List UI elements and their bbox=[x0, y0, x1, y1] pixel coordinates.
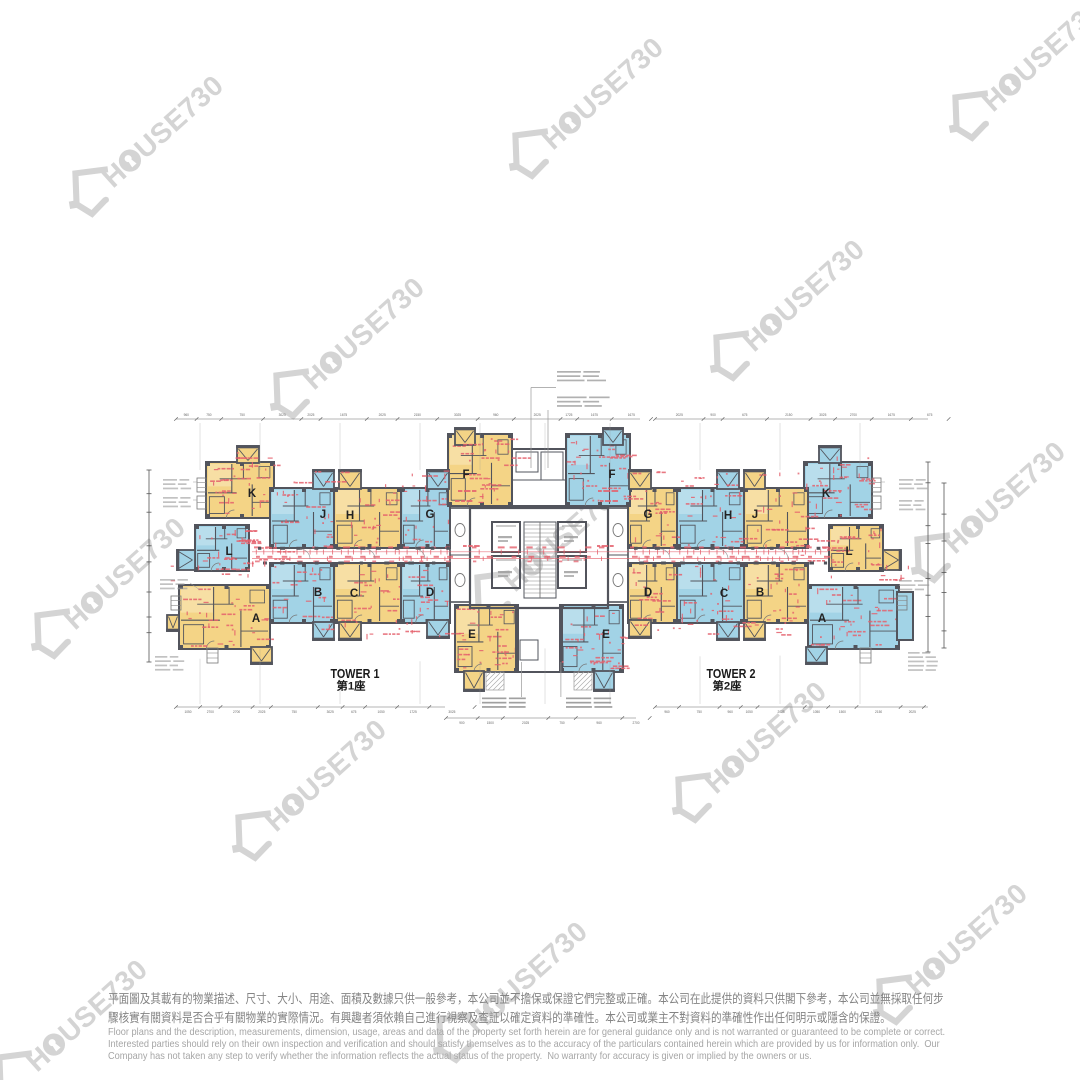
svg-text:L: L bbox=[845, 546, 852, 558]
svg-text:2700: 2700 bbox=[233, 710, 240, 714]
svg-text:750: 750 bbox=[559, 721, 565, 725]
svg-text:2025: 2025 bbox=[379, 413, 386, 417]
svg-text:960: 960 bbox=[596, 721, 602, 725]
svg-text:750: 750 bbox=[697, 710, 703, 714]
svg-text:675: 675 bbox=[351, 710, 357, 714]
svg-text:B: B bbox=[314, 587, 322, 599]
svg-text:J: J bbox=[320, 509, 326, 521]
svg-text:D: D bbox=[644, 587, 652, 599]
svg-text:1050: 1050 bbox=[184, 710, 191, 714]
svg-text:K: K bbox=[248, 488, 257, 500]
svg-text:1675: 1675 bbox=[628, 413, 635, 417]
svg-text:960: 960 bbox=[493, 413, 499, 417]
svg-text:HOUSE730: HOUSE730 bbox=[900, 876, 1034, 1001]
svg-text:HOUSE730: HOUSE730 bbox=[297, 270, 431, 395]
svg-text:3025: 3025 bbox=[454, 413, 461, 417]
svg-text:2025: 2025 bbox=[258, 710, 265, 714]
svg-text:3025: 3025 bbox=[327, 710, 334, 714]
svg-text:TOWER 1: TOWER 1 bbox=[331, 667, 380, 681]
svg-text:H: H bbox=[724, 510, 732, 522]
svg-text:1675: 1675 bbox=[340, 413, 347, 417]
svg-text:900: 900 bbox=[459, 721, 465, 725]
svg-text:第2座: 第2座 bbox=[713, 679, 742, 693]
svg-text:F: F bbox=[462, 469, 469, 481]
svg-text:B: B bbox=[756, 587, 764, 599]
svg-text:J: J bbox=[752, 509, 758, 521]
svg-text:HOUSE730: HOUSE730 bbox=[96, 68, 230, 193]
svg-text:K: K bbox=[822, 488, 831, 500]
svg-text:2025: 2025 bbox=[778, 710, 785, 714]
svg-text:G: G bbox=[426, 509, 435, 521]
svg-text:675: 675 bbox=[742, 413, 748, 417]
svg-text:675: 675 bbox=[927, 413, 933, 417]
svg-text:C: C bbox=[720, 588, 728, 600]
svg-text:1725: 1725 bbox=[565, 413, 572, 417]
svg-text:F: F bbox=[608, 469, 615, 481]
svg-text:1725: 1725 bbox=[410, 710, 417, 714]
svg-text:D: D bbox=[426, 587, 434, 599]
svg-text:2025: 2025 bbox=[676, 413, 683, 417]
svg-text:第1座: 第1座 bbox=[337, 679, 366, 693]
svg-text:2700: 2700 bbox=[850, 413, 857, 417]
svg-text:1675: 1675 bbox=[888, 413, 895, 417]
svg-text:1500: 1500 bbox=[487, 721, 494, 725]
svg-text:HOUSE730: HOUSE730 bbox=[699, 674, 833, 799]
svg-text:TOWER 2: TOWER 2 bbox=[707, 667, 756, 681]
svg-text:1050: 1050 bbox=[813, 710, 820, 714]
svg-text:A: A bbox=[818, 613, 826, 625]
svg-text:2025: 2025 bbox=[534, 413, 541, 417]
svg-text:HOUSE730: HOUSE730 bbox=[259, 712, 393, 837]
svg-text:960: 960 bbox=[728, 710, 734, 714]
svg-text:1050: 1050 bbox=[746, 710, 753, 714]
svg-text:960: 960 bbox=[664, 710, 670, 714]
svg-text:2025: 2025 bbox=[307, 413, 314, 417]
svg-text:HOUSE730: HOUSE730 bbox=[976, 0, 1080, 117]
svg-text:2700: 2700 bbox=[207, 710, 214, 714]
svg-text:2025: 2025 bbox=[909, 710, 916, 714]
svg-text:HOUSE730: HOUSE730 bbox=[938, 434, 1072, 559]
svg-text:1500: 1500 bbox=[839, 710, 846, 714]
svg-text:2150: 2150 bbox=[414, 413, 421, 417]
svg-text:HOUSE730: HOUSE730 bbox=[737, 232, 871, 357]
svg-text:E: E bbox=[468, 629, 476, 641]
svg-text:E: E bbox=[602, 629, 610, 641]
svg-text:3025: 3025 bbox=[448, 710, 455, 714]
svg-text:960: 960 bbox=[184, 413, 190, 417]
svg-text:900: 900 bbox=[710, 413, 716, 417]
svg-text:L: L bbox=[225, 546, 232, 558]
svg-text:1675: 1675 bbox=[591, 413, 598, 417]
svg-text:G: G bbox=[644, 509, 653, 521]
svg-text:3025: 3025 bbox=[819, 413, 826, 417]
svg-text:H: H bbox=[346, 510, 354, 522]
svg-text:2700: 2700 bbox=[632, 721, 639, 725]
svg-text:750: 750 bbox=[206, 413, 212, 417]
svg-text:HOUSE730: HOUSE730 bbox=[536, 30, 670, 155]
svg-text:1050: 1050 bbox=[378, 710, 385, 714]
svg-text:750: 750 bbox=[292, 710, 298, 714]
svg-text:C: C bbox=[350, 588, 358, 600]
svg-text:2025: 2025 bbox=[522, 721, 529, 725]
svg-text:750: 750 bbox=[240, 413, 246, 417]
svg-text:2150: 2150 bbox=[875, 710, 882, 714]
svg-text:2150: 2150 bbox=[785, 413, 792, 417]
svg-text:3025: 3025 bbox=[279, 413, 286, 417]
svg-text:A: A bbox=[252, 613, 260, 625]
